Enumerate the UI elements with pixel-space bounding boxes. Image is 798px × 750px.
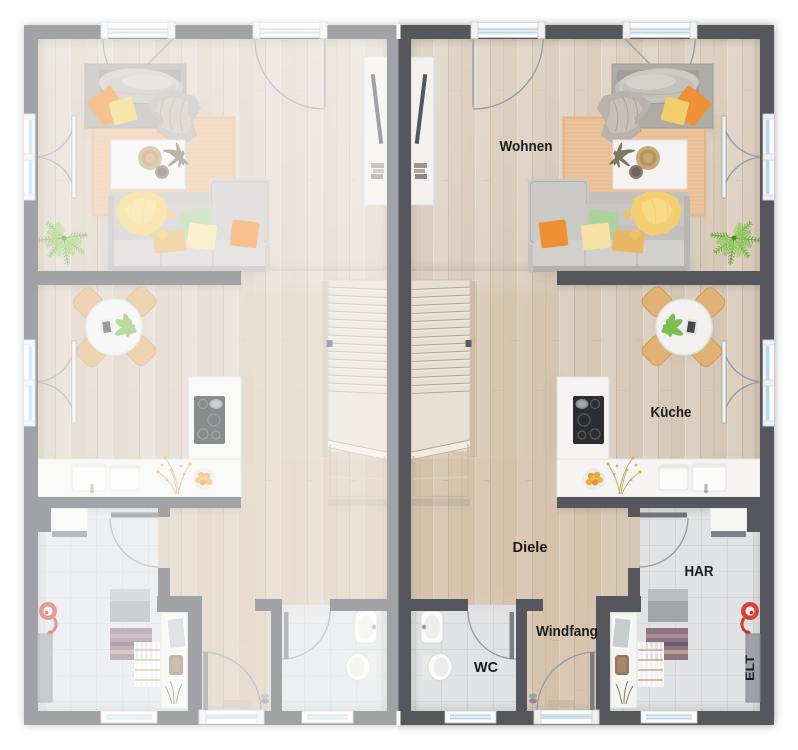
svg-text:WC: WC xyxy=(474,659,498,676)
svg-text:Windfang: Windfang xyxy=(536,623,598,640)
svg-text:HAR: HAR xyxy=(685,563,714,580)
svg-text:Küche: Küche xyxy=(651,404,692,421)
svg-text:Diele: Diele xyxy=(513,539,548,556)
svg-text:Wohnen: Wohnen xyxy=(500,138,553,155)
svg-text:ELT: ELT xyxy=(743,654,757,681)
